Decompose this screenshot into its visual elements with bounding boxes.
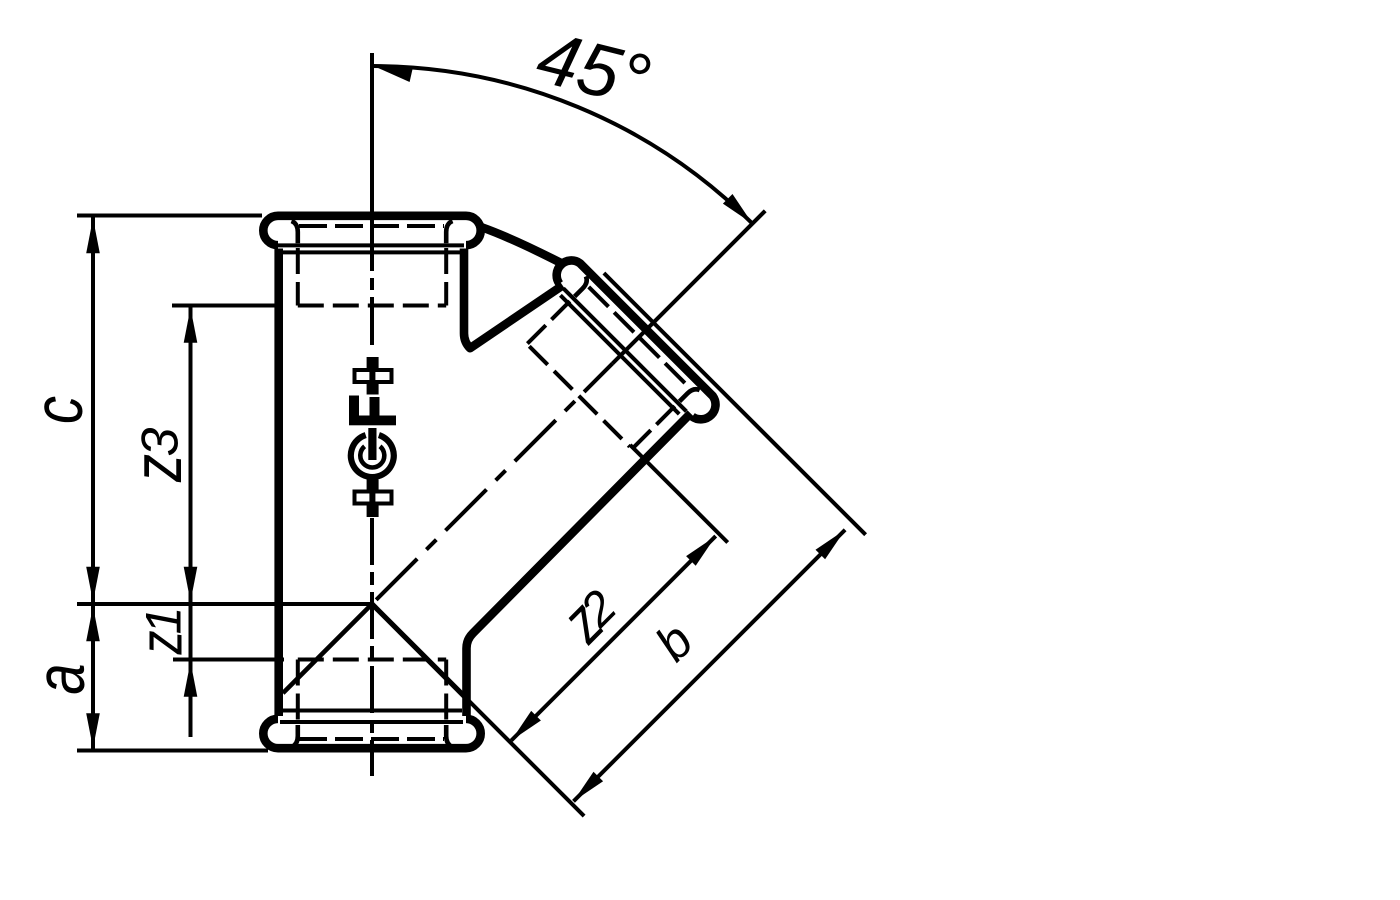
svg-text:3: 3 (132, 427, 190, 456)
svg-text:a: a (22, 663, 99, 694)
svg-text:c: c (20, 396, 97, 424)
svg-text:z: z (119, 454, 196, 483)
svg-text:1: 1 (136, 607, 192, 635)
